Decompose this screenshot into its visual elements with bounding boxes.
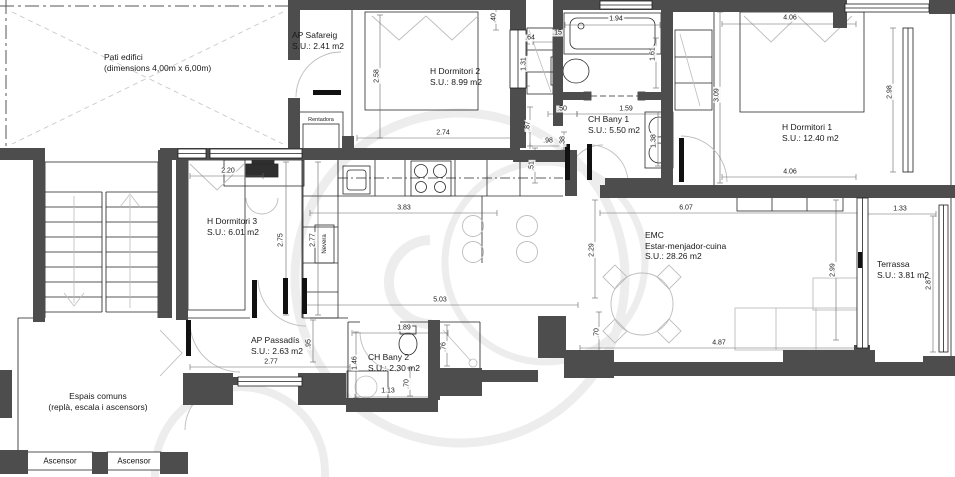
dimension-label: .76 <box>441 341 448 353</box>
floor-plan: Pati edifici(dimensions 4,00m x 6,00m)AP… <box>0 0 955 477</box>
appliance-label: Rentadora <box>308 117 334 123</box>
dimension-label: .40 <box>491 12 498 24</box>
dimension-label: .64 <box>524 35 536 42</box>
shower-bany-2 <box>347 371 388 402</box>
room-label-h-dormitori-1: H Dormitori 1S.U.: 12.40 m2 <box>782 122 839 143</box>
dimension-label: .38 <box>560 135 567 147</box>
dimension-label: 1.89 <box>396 325 412 332</box>
dimension-label: 2.99 <box>830 262 837 278</box>
dimension-label: 1.46 <box>352 355 359 371</box>
dimension-label: 1.13 <box>380 388 396 395</box>
room-label-h-dormitori-2: H Dormitori 2S.U.: 8.99 m2 <box>430 66 482 87</box>
dimension-label: .87 <box>525 120 532 132</box>
desk-chair <box>246 198 278 214</box>
dimension-label: 2.20 <box>220 168 236 175</box>
dimension-label: 1.31 <box>521 56 528 72</box>
elevator-label: Ascensor <box>43 457 76 466</box>
room-label-ap-passadis: AP PassadísS.U.: 2.63 m2 <box>251 335 303 356</box>
dimension-label: 3.09 <box>714 87 721 103</box>
pillow-dormitori-2 <box>372 16 478 40</box>
bar-stools <box>463 216 538 263</box>
stair-steps <box>45 192 158 312</box>
room-label-espais-comuns: Espais comuns(replà, escala i ascensors) <box>48 391 147 412</box>
staircase <box>45 162 158 318</box>
glass-partition <box>584 92 645 100</box>
dimension-label: .70 <box>404 378 411 390</box>
dimension-label: 3.83 <box>396 205 412 212</box>
dimension-label: 2.58 <box>374 68 381 84</box>
printer <box>246 164 278 177</box>
dimension-label: 2.74 <box>435 130 451 137</box>
room-label-ap-safareig: AP SafareigS.U.: 2.41 m2 <box>292 30 344 51</box>
bed-dormitori-2 <box>365 12 478 110</box>
kitchen-counter <box>338 160 563 263</box>
room-label-ch-bany-2: CH Bany 2S.U.: 2.30 m2 <box>368 352 420 373</box>
room-label-terrassa: TerrassaS.U.: 3.81 m2 <box>877 259 929 280</box>
dimension-label: 1.33 <box>892 206 908 213</box>
dimension-label: 1.59 <box>618 106 634 113</box>
dimension-label: 2.77 <box>310 232 317 248</box>
dimension-label: 2.29 <box>589 242 596 258</box>
dimension-label: 1.94 <box>608 16 624 23</box>
dimension-label: .51 <box>529 160 536 172</box>
room-label-pati-edifici: Pati edifici(dimensions 4,00m x 6,00m) <box>104 52 211 73</box>
dimension-label: 6.07 <box>678 205 694 212</box>
dimension-label: .98 <box>542 138 554 145</box>
dimension-label: 2.98 <box>887 84 894 100</box>
sofa <box>735 278 857 350</box>
dimension-label: .70 <box>594 327 601 339</box>
wardrobe-dormitori-1 <box>675 30 712 110</box>
room-label-h-dormitori-3: H Dormitori 3S.U.: 6.01 m2 <box>207 216 259 237</box>
dimension-label: 1.61 <box>650 46 657 62</box>
dimension-label: 4.87 <box>711 340 727 347</box>
dimension-label: 4.06 <box>782 15 798 22</box>
elevator-label: Ascensor <box>117 457 150 466</box>
room-label-emc: EMCEstar-menjador-cuinaS.U.: 28.26 m2 <box>645 230 726 262</box>
dimension-label: 2.77 <box>263 359 279 366</box>
dimension-label: 2.75 <box>278 232 285 248</box>
patio-boundary-lines <box>0 0 288 148</box>
dimension-label: .15 <box>551 30 563 37</box>
appliance-label: Nevera <box>322 234 328 253</box>
dimension-label: 4.06 <box>782 169 798 176</box>
room-label-ch-bany-1: CH Bany 1S.U.: 5.50 m2 <box>588 114 640 135</box>
dimension-label: 5.03 <box>432 297 448 304</box>
dimension-label: .95 <box>306 338 313 350</box>
dimension-label: 1.38 <box>651 133 658 149</box>
dimension-label: .50 <box>556 106 568 113</box>
